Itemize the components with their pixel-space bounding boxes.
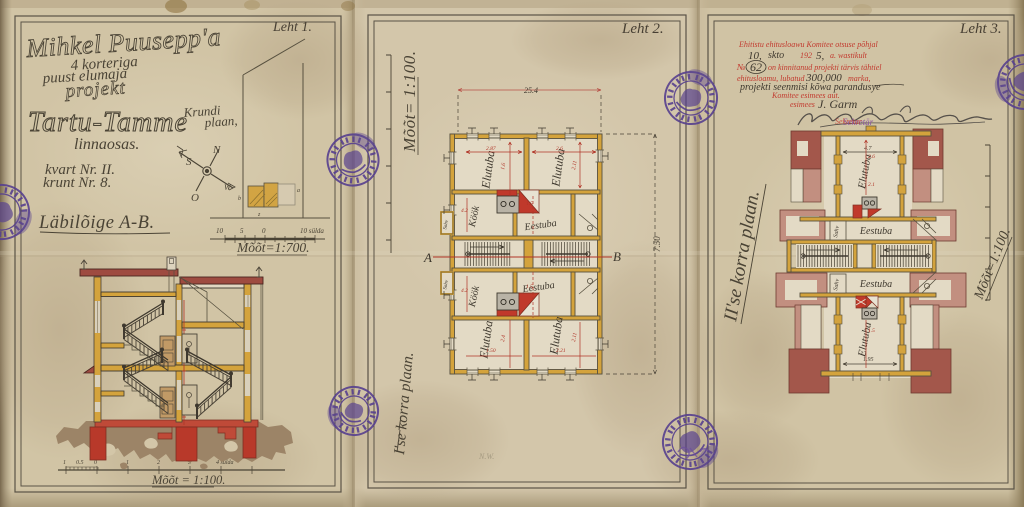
svg-text:skto: skto <box>768 50 784 61</box>
svg-text:Leht 1.: Leht 1. <box>272 20 312 35</box>
svg-text:linnaosas.: linnaosas. <box>74 136 139 153</box>
svg-text:1.5: 1.5 <box>526 284 533 290</box>
svg-text:Mõõt= 1:100.: Mõõt= 1:100. <box>400 50 419 153</box>
svg-text:10 sülda: 10 sülda <box>300 227 324 235</box>
svg-text:0: 0 <box>262 227 266 235</box>
svg-text:N: N <box>212 144 221 156</box>
svg-text:2.6: 2.6 <box>868 154 875 160</box>
svg-text:1.50: 1.50 <box>486 348 496 354</box>
svg-text:Leht 3.: Leht 3. <box>959 21 1002 37</box>
svg-text:2.6: 2.6 <box>556 146 563 152</box>
svg-text:4.2: 4.2 <box>461 287 468 294</box>
svg-text:esimees: esimees <box>790 100 815 109</box>
svg-text:Läbilõige A-B.: Läbilõige A-B. <box>38 213 155 233</box>
svg-text:1.95: 1.95 <box>863 357 874 363</box>
svg-text:10: 10 <box>216 227 224 235</box>
svg-text:Mõõt=1:700.: Mõõt=1:700. <box>236 240 309 255</box>
svg-text:2.87: 2.87 <box>486 146 496 152</box>
svg-text:№: № <box>736 62 746 72</box>
svg-text:S: S <box>186 156 192 168</box>
svg-text:Sekretar: Sekretar <box>835 117 863 126</box>
svg-text:0.5: 0.5 <box>76 460 84 466</box>
svg-text:7.50: 7.50 <box>652 236 662 252</box>
svg-text:5,: 5, <box>816 50 825 62</box>
svg-text:projekt: projekt <box>63 77 126 102</box>
svg-text:plaan,: plaan, <box>203 113 238 130</box>
svg-text:62: 62 <box>750 60 762 74</box>
svg-text:192: 192 <box>800 51 812 60</box>
svg-text:krunt Nr. 8.: krunt Nr. 8. <box>43 175 111 191</box>
svg-text:Eestuba: Eestuba <box>859 279 892 290</box>
svg-text:N.W.: N.W. <box>478 452 494 461</box>
svg-text:2.21: 2.21 <box>556 348 566 354</box>
svg-text:2: 2 <box>157 460 160 466</box>
svg-text:b: b <box>238 196 241 202</box>
svg-text:0: 0 <box>94 460 97 466</box>
svg-text:Eestuba: Eestuba <box>859 226 892 237</box>
svg-text:1.5: 1.5 <box>526 201 533 207</box>
svg-text:4.2: 4.2 <box>461 207 468 214</box>
svg-text:25.4: 25.4 <box>524 86 538 95</box>
svg-text:Leht 2.: Leht 2. <box>621 21 664 37</box>
svg-text:B: B <box>613 249 621 264</box>
svg-text:a. wastikult: a. wastikult <box>830 51 868 60</box>
svg-text:a: a <box>297 188 300 194</box>
svg-text:2.1: 2.1 <box>868 182 875 188</box>
svg-text:Ehitistu ehitusloawu Komitee: Ehitistu ehitusloawu Komitee otsuse põhj… <box>738 40 878 49</box>
svg-text:5: 5 <box>240 227 244 235</box>
svg-text:O: O <box>191 192 199 204</box>
svg-text:A: A <box>423 250 432 265</box>
svg-text:4.7: 4.7 <box>864 145 873 152</box>
svg-text:on kinnitanud projekti tärvis: on kinnitanud projekti tärvis tähtiel <box>768 63 882 72</box>
svg-text:1.6: 1.6 <box>500 162 507 170</box>
svg-text:J. Garm: J. Garm <box>818 97 858 111</box>
svg-text:Tartu-Tamme: Tartu-Tamme <box>28 107 188 138</box>
svg-text:Mõõt = 1:100.: Mõõt = 1:100. <box>151 473 225 487</box>
svg-text:1: 1 <box>63 460 66 466</box>
svg-text:1.5: 1.5 <box>868 328 875 334</box>
